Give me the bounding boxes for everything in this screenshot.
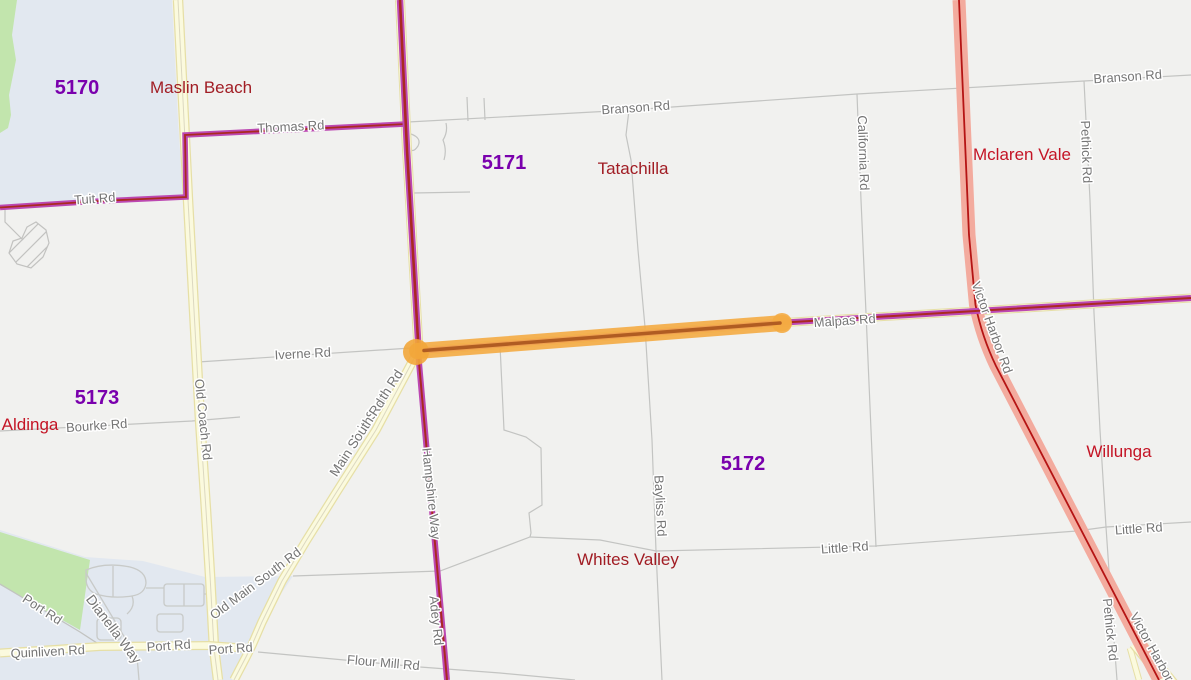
svg-text:Aldinga: Aldinga	[2, 415, 59, 434]
svg-text:Bayliss Rd: Bayliss Rd	[651, 475, 669, 537]
svg-text:5172: 5172	[721, 453, 766, 475]
svg-text:Port Rd: Port Rd	[208, 639, 253, 657]
svg-text:Pethick Rd: Pethick Rd	[1078, 120, 1095, 183]
svg-text:Tatachilla: Tatachilla	[598, 159, 669, 178]
svg-text:Whites Valley: Whites Valley	[577, 550, 679, 569]
svg-text:Willunga: Willunga	[1086, 442, 1152, 461]
svg-text:Tuit Rd: Tuit Rd	[74, 190, 116, 208]
svg-text:5173: 5173	[75, 387, 120, 409]
svg-text:California Rd: California Rd	[855, 115, 873, 191]
svg-text:Mclaren Vale: Mclaren Vale	[973, 145, 1071, 164]
svg-text:Iverne Rd: Iverne Rd	[274, 345, 331, 363]
svg-text:Port Rd: Port Rd	[146, 636, 191, 654]
svg-text:Maslin Beach: Maslin Beach	[150, 78, 252, 97]
svg-text:5171: 5171	[482, 152, 527, 174]
svg-text:5170: 5170	[55, 77, 100, 99]
